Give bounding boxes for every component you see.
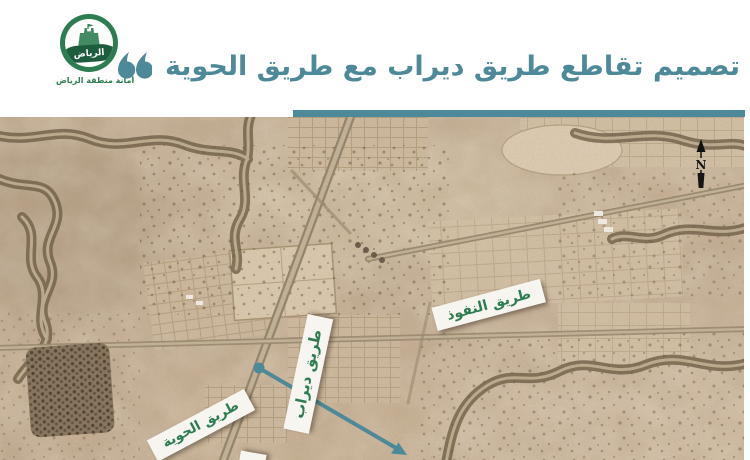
page-title: تصميم تقاطع طريق ديراب مع طريق الحوية	[165, 51, 740, 82]
logo-banner-text: الرياض	[73, 47, 105, 59]
riyadh-municipality-logo: الرياض أمانة منطقة الرياض	[56, 14, 122, 85]
title-row: تصميم تقاطع طريق ديراب مع طريق الحوية	[116, 44, 740, 88]
logo-caption: أمانة منطقة الرياض	[56, 76, 122, 85]
header: الرياض أمانة منطقة الرياض تصميم تقاطع طر…	[0, 0, 750, 117]
slide-page: الرياض أمانة منطقة الرياض تصميم تقاطع طر…	[0, 0, 750, 460]
satellite-map: N طريق النفوذ طريق ديراب طريق الحوية الم…	[0, 117, 744, 460]
north-arrow-label: N	[696, 158, 707, 172]
satellite-terrain-art: N	[0, 117, 744, 460]
double-quote-icon	[116, 51, 152, 81]
header-divider-rule	[293, 110, 745, 117]
logo-emblem: الرياض	[60, 14, 118, 72]
logo-emblem-inner: الرياض	[65, 19, 113, 67]
logo-banner: الرياض	[65, 43, 113, 64]
